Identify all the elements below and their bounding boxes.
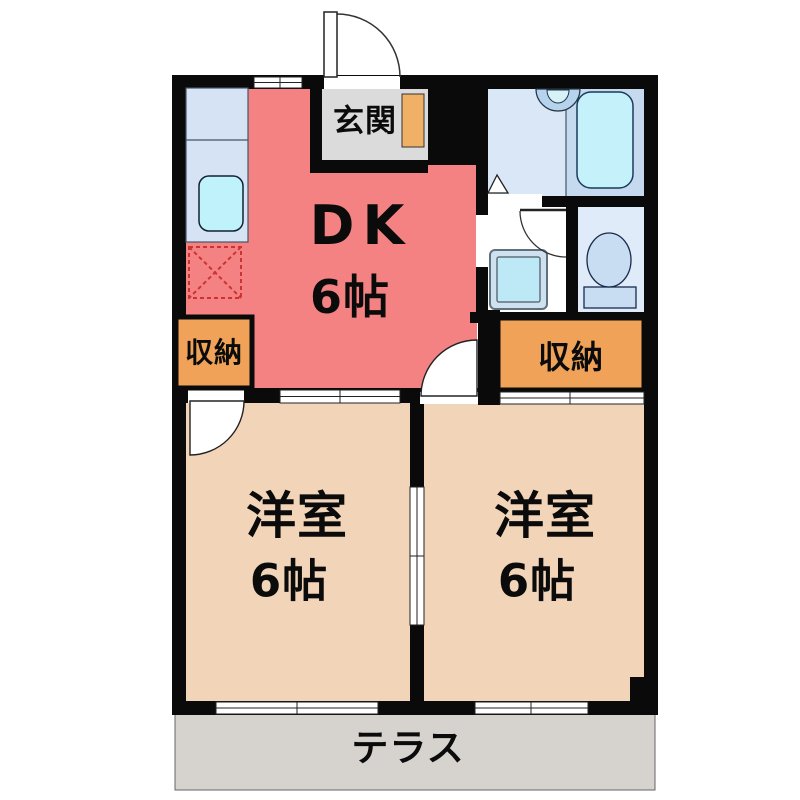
closet-right-label: 収納 <box>538 341 604 373</box>
washer-pan <box>490 250 547 309</box>
floor-plan: 玄関 DK 6帖 収納 収納 洋室 6帖 洋室 6帖 テラス <box>0 0 800 800</box>
washroom-doorway <box>476 215 488 267</box>
bedroom-divider-sliding-door <box>410 487 424 625</box>
bedroom-left-window <box>216 702 378 714</box>
bedroom-left-size-label: 6帖 <box>250 559 328 604</box>
kitchen-sink <box>199 176 243 231</box>
dk-size-label: 6帖 <box>310 274 390 320</box>
wall-top <box>172 75 658 89</box>
wall-washroom-toilet <box>566 207 578 312</box>
closet-right-sliding-door <box>500 392 644 404</box>
wall-genkan-mass <box>428 75 478 165</box>
entrance-door-arc <box>337 14 400 77</box>
wall-room-divider-bottom <box>410 625 424 715</box>
wall-bottom-right-notch <box>630 677 658 715</box>
kitchen-window <box>254 77 302 88</box>
kitchen-counter <box>186 88 248 242</box>
entrance-opening <box>324 76 400 89</box>
terrace-label: テラス <box>351 730 464 767</box>
dk-label: DK <box>310 199 413 253</box>
bath-door-threshold <box>488 194 542 206</box>
bedroom-right-size-label: 6帖 <box>498 559 576 604</box>
wall-room-divider-top <box>410 397 424 487</box>
entrance-door <box>324 12 400 77</box>
shoe-cabinet <box>402 94 424 147</box>
genkan-label: 玄関 <box>333 107 397 138</box>
bedroom-right-floor <box>424 397 644 701</box>
bathtub <box>577 92 633 188</box>
wall-bath-bottom <box>542 196 644 207</box>
toilet-bowl <box>587 233 631 287</box>
floor-plan-drawing <box>0 0 800 800</box>
wall-right <box>644 75 658 715</box>
dk-bedroom-sliding-door <box>280 390 400 403</box>
wall-dk-right <box>476 267 488 315</box>
closet-left-label: 収納 <box>185 339 243 367</box>
bedroom-right-label: 洋室 <box>494 491 596 541</box>
wall-genkan-bottom <box>310 160 428 173</box>
toilet-tank <box>584 287 636 308</box>
entrance-door-leaf <box>324 12 337 77</box>
bedroom-left-label: 洋室 <box>246 491 348 541</box>
wall-bath-left <box>476 85 488 215</box>
bedroom-right-window <box>475 702 588 714</box>
